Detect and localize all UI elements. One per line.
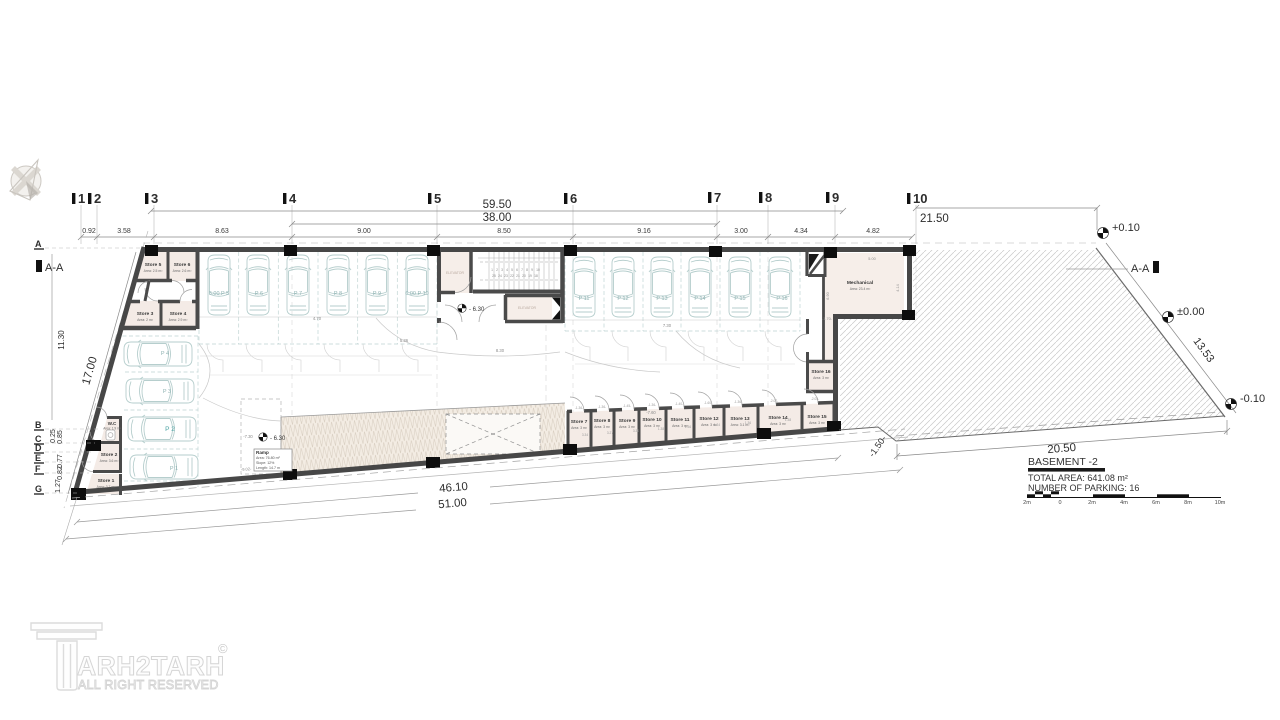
svg-text:0.25: 0.25 <box>50 429 57 443</box>
svg-text:20.50: 20.50 <box>1047 442 1077 456</box>
svg-text:Slope: 12%: Slope: 12% <box>256 461 275 465</box>
svg-text:-1.36-: -1.36- <box>648 403 656 407</box>
svg-text:-0.10: -0.10 <box>1240 393 1265 405</box>
svg-text:P 4: P 4 <box>161 351 169 357</box>
svg-text:5: 5 <box>511 268 513 272</box>
svg-text:4.70: 4.70 <box>313 316 322 321</box>
svg-text:Area: 3 m²: Area: 3 m² <box>571 426 588 430</box>
svg-text:5.36: 5.36 <box>400 338 409 343</box>
svg-text:21.50: 21.50 <box>920 213 949 225</box>
svg-text:Store 8: Store 8 <box>594 418 611 424</box>
svg-text:6.00 P 10: 6.00 P 10 <box>405 291 428 297</box>
svg-text:11.30: 11.30 <box>57 330 66 350</box>
svg-text:20: 20 <box>522 274 526 278</box>
svg-text:-1.36-: -1.36- <box>575 406 583 410</box>
svg-text:Area: 3 m²: Area: 3 m² <box>770 422 787 426</box>
svg-text:P 12: P 12 <box>617 296 628 302</box>
svg-text:Store 1: Store 1 <box>98 478 115 484</box>
svg-text:Ramp: Ramp <box>256 450 269 455</box>
svg-text:8m: 8m <box>1184 500 1192 506</box>
svg-text:Area: 3.7 m²: Area: 3.7 m² <box>97 485 117 489</box>
svg-text:22: 22 <box>510 274 514 278</box>
svg-text:Area: 1.9 m²: Area: 1.9 m² <box>103 427 121 431</box>
svg-text:Store 3: Store 3 <box>137 311 154 317</box>
svg-text:NUMBER OF PARKING: 16: NUMBER OF PARKING: 16 <box>1028 483 1139 493</box>
svg-text:B: B <box>35 420 42 430</box>
svg-text:Mechanical: Mechanical <box>847 280 874 286</box>
svg-text:Area: 3 m²: Area: 3 m² <box>594 425 611 429</box>
svg-text:9: 9 <box>531 268 533 272</box>
svg-text:P 15: P 15 <box>734 296 745 302</box>
svg-text:6: 6 <box>570 191 577 206</box>
svg-text:-2.05-: -2.05- <box>811 397 819 401</box>
svg-text:24: 24 <box>498 274 502 278</box>
svg-text:Store 6: Store 6 <box>174 262 191 268</box>
svg-text:Store 15: Store 15 <box>807 414 827 420</box>
svg-text:0.77: 0.77 <box>57 454 64 468</box>
svg-text:8.63: 8.63 <box>215 228 229 235</box>
svg-text:-9.02-: -9.02- <box>241 466 253 472</box>
svg-text:4m: 4m <box>1120 500 1128 506</box>
svg-text:6: 6 <box>516 268 518 272</box>
svg-text:19: 19 <box>528 274 532 278</box>
svg-text:4.14: 4.14 <box>896 284 900 291</box>
svg-text:9.00: 9.00 <box>357 228 371 235</box>
svg-text:P 1: P 1 <box>170 466 178 472</box>
svg-text:9.16: 9.16 <box>637 228 651 235</box>
svg-text:18: 18 <box>534 274 538 278</box>
svg-text:Store 13: Store 13 <box>730 416 750 422</box>
svg-text:1: 1 <box>491 268 493 272</box>
svg-text:E: E <box>35 453 41 463</box>
svg-text:46.10: 46.10 <box>439 481 469 495</box>
svg-text:+0.10: +0.10 <box>1112 222 1140 234</box>
svg-text:P 7: P 7 <box>294 291 302 297</box>
svg-text:Store 12: Store 12 <box>699 416 719 422</box>
svg-text:TOTAL AREA: 641.08 m²: TOTAL AREA: 641.08 m² <box>1028 473 1128 483</box>
svg-text:Area: 3 m²: Area: 3 m² <box>672 424 689 428</box>
svg-text:0.82: 0.82 <box>57 466 64 480</box>
svg-text:-1.70-: -1.70- <box>822 317 833 321</box>
svg-text:- 6.30: - 6.30 <box>469 307 485 313</box>
svg-text:Area: 3 m²: Area: 3 m² <box>809 421 826 425</box>
svg-text:Area: 3 m²: Area: 3 m² <box>619 425 636 429</box>
svg-text:ALL RIGHT RESERVED: ALL RIGHT RESERVED <box>78 678 219 692</box>
svg-text:4.34: 4.34 <box>794 228 808 235</box>
svg-text:-1.36-: -1.36- <box>734 400 742 404</box>
svg-text:F: F <box>35 464 41 474</box>
svg-text:Area: 76.80 m²: Area: 76.80 m² <box>256 456 281 460</box>
svg-text:10: 10 <box>913 191 927 206</box>
svg-text:Store 7: Store 7 <box>571 419 588 425</box>
svg-text:6.90: 6.90 <box>826 292 830 299</box>
svg-text:10m: 10m <box>1215 500 1226 506</box>
svg-text:©: © <box>218 641 228 656</box>
svg-text:Area: 2 m²: Area: 2 m² <box>137 318 154 322</box>
svg-text:10: 10 <box>536 268 540 272</box>
svg-text:P 9: P 9 <box>373 291 381 297</box>
svg-text:Area: 2.5 m²: Area: 2.5 m² <box>144 269 164 273</box>
svg-text:-2.07-: -2.07- <box>770 399 778 403</box>
svg-text:17.00: 17.00 <box>80 355 99 386</box>
svg-text:8.30: 8.30 <box>496 348 505 353</box>
svg-text:P 13: P 13 <box>656 296 667 302</box>
svg-text:0.85: 0.85 <box>57 430 64 444</box>
svg-text:Store 4: Store 4 <box>170 311 187 317</box>
svg-text:8: 8 <box>526 268 528 272</box>
svg-text:3.30: 3.30 <box>633 429 639 433</box>
svg-text:Store 9: Store 9 <box>619 418 636 424</box>
svg-text:3: 3 <box>151 191 158 206</box>
svg-text:4: 4 <box>289 191 297 206</box>
svg-text:3: 3 <box>501 268 503 272</box>
svg-text:ELEVATOR: ELEVATOR <box>446 271 465 275</box>
svg-text:- 6.30: - 6.30 <box>270 436 286 442</box>
svg-text:Store 2: Store 2 <box>101 452 118 458</box>
svg-text:P 6: P 6 <box>255 291 263 297</box>
svg-text:Area: 3 m²: Area: 3 m² <box>644 424 661 428</box>
svg-text:13.53: 13.53 <box>1190 336 1216 365</box>
svg-text:-1.50-: -1.50- <box>867 434 889 459</box>
svg-text:-1.40-: -1.40- <box>675 402 683 406</box>
svg-text:6m: 6m <box>1152 500 1160 506</box>
svg-text:BASEMENT -2: BASEMENT -2 <box>1028 456 1098 468</box>
svg-text:3.34: 3.34 <box>582 433 588 437</box>
svg-text:-1.36-: -1.36- <box>598 405 606 409</box>
svg-text:1.27: 1.27 <box>55 479 62 493</box>
svg-text:P 11: P 11 <box>579 296 590 302</box>
svg-text:59.50: 59.50 <box>483 199 512 211</box>
svg-text:7: 7 <box>714 190 721 205</box>
svg-text:Area: 3 m²: Area: 3 m² <box>701 423 718 427</box>
svg-text:6.00 P 5: 6.00 P 5 <box>209 291 229 297</box>
svg-text:2: 2 <box>94 191 101 206</box>
svg-text:0.92: 0.92 <box>82 228 96 235</box>
svg-text:25: 25 <box>492 274 496 278</box>
svg-text:P 3: P 3 <box>163 389 171 395</box>
svg-text:Store 11: Store 11 <box>670 417 689 423</box>
svg-text:Area: 23.4 m²: Area: 23.4 m² <box>850 287 871 291</box>
svg-text:51.00: 51.00 <box>438 497 468 511</box>
svg-text:-1.45-: -1.45- <box>623 404 631 408</box>
svg-text:38.00: 38.00 <box>483 212 512 224</box>
svg-text:Area: 2.6 m²: Area: 2.6 m² <box>173 269 193 273</box>
svg-text:23: 23 <box>504 274 508 278</box>
svg-text:Store 5: Store 5 <box>145 262 162 268</box>
svg-text:A-A: A-A <box>45 262 64 274</box>
svg-text:0: 0 <box>1058 500 1061 506</box>
svg-text:-1.60-: -1.60- <box>704 401 712 405</box>
svg-text:3.27: 3.27 <box>607 431 613 435</box>
svg-text:7.30: 7.30 <box>663 323 672 328</box>
svg-text:Area: 3 m²: Area: 3 m² <box>813 376 830 380</box>
svg-text:ELEVATOR: ELEVATOR <box>518 306 537 310</box>
svg-text:A-A: A-A <box>1131 263 1150 275</box>
svg-text:P 16: P 16 <box>776 296 787 302</box>
svg-text:21: 21 <box>516 274 520 278</box>
svg-text:Store 16: Store 16 <box>811 369 831 375</box>
svg-text:±0.00: ±0.00 <box>1177 306 1204 318</box>
svg-text:4.82: 4.82 <box>866 228 880 235</box>
svg-text:3.58: 3.58 <box>117 228 131 235</box>
svg-text:Area: 2.9 m²: Area: 2.9 m² <box>169 318 189 322</box>
svg-text:5.00: 5.00 <box>868 257 875 261</box>
svg-text:P 14: P 14 <box>694 296 705 302</box>
svg-text:Area: 3.6 m²: Area: 3.6 m² <box>100 459 120 463</box>
svg-text:1: 1 <box>78 191 85 206</box>
svg-text:2m: 2m <box>1088 500 1096 506</box>
svg-text:4: 4 <box>506 268 508 272</box>
svg-text:8.50: 8.50 <box>497 228 511 235</box>
svg-text:Store 10: Store 10 <box>642 417 662 423</box>
svg-text:Length: 14.7 m: Length: 14.7 m <box>256 466 280 470</box>
svg-text:5: 5 <box>434 191 441 206</box>
svg-text:-7.30: -7.30 <box>243 434 253 439</box>
svg-text:P 2: P 2 <box>165 426 175 433</box>
svg-text:3.00: 3.00 <box>734 228 748 235</box>
svg-text:P 8: P 8 <box>334 291 342 297</box>
svg-text:-7.60: -7.60 <box>646 410 656 415</box>
svg-text:2m: 2m <box>1023 500 1031 506</box>
svg-text:2: 2 <box>496 268 498 272</box>
svg-text:A: A <box>35 239 42 249</box>
svg-text:9: 9 <box>832 190 839 205</box>
svg-text:W.C: W.C <box>108 421 117 426</box>
svg-text:Store 14: Store 14 <box>768 415 788 421</box>
svg-text:7: 7 <box>521 268 523 272</box>
svg-text:ARH2TARH: ARH2TARH <box>77 651 225 681</box>
svg-text:8: 8 <box>765 190 772 205</box>
svg-text:G: G <box>35 484 42 494</box>
svg-text:Area: 3.1 m²: Area: 3.1 m² <box>731 423 751 427</box>
